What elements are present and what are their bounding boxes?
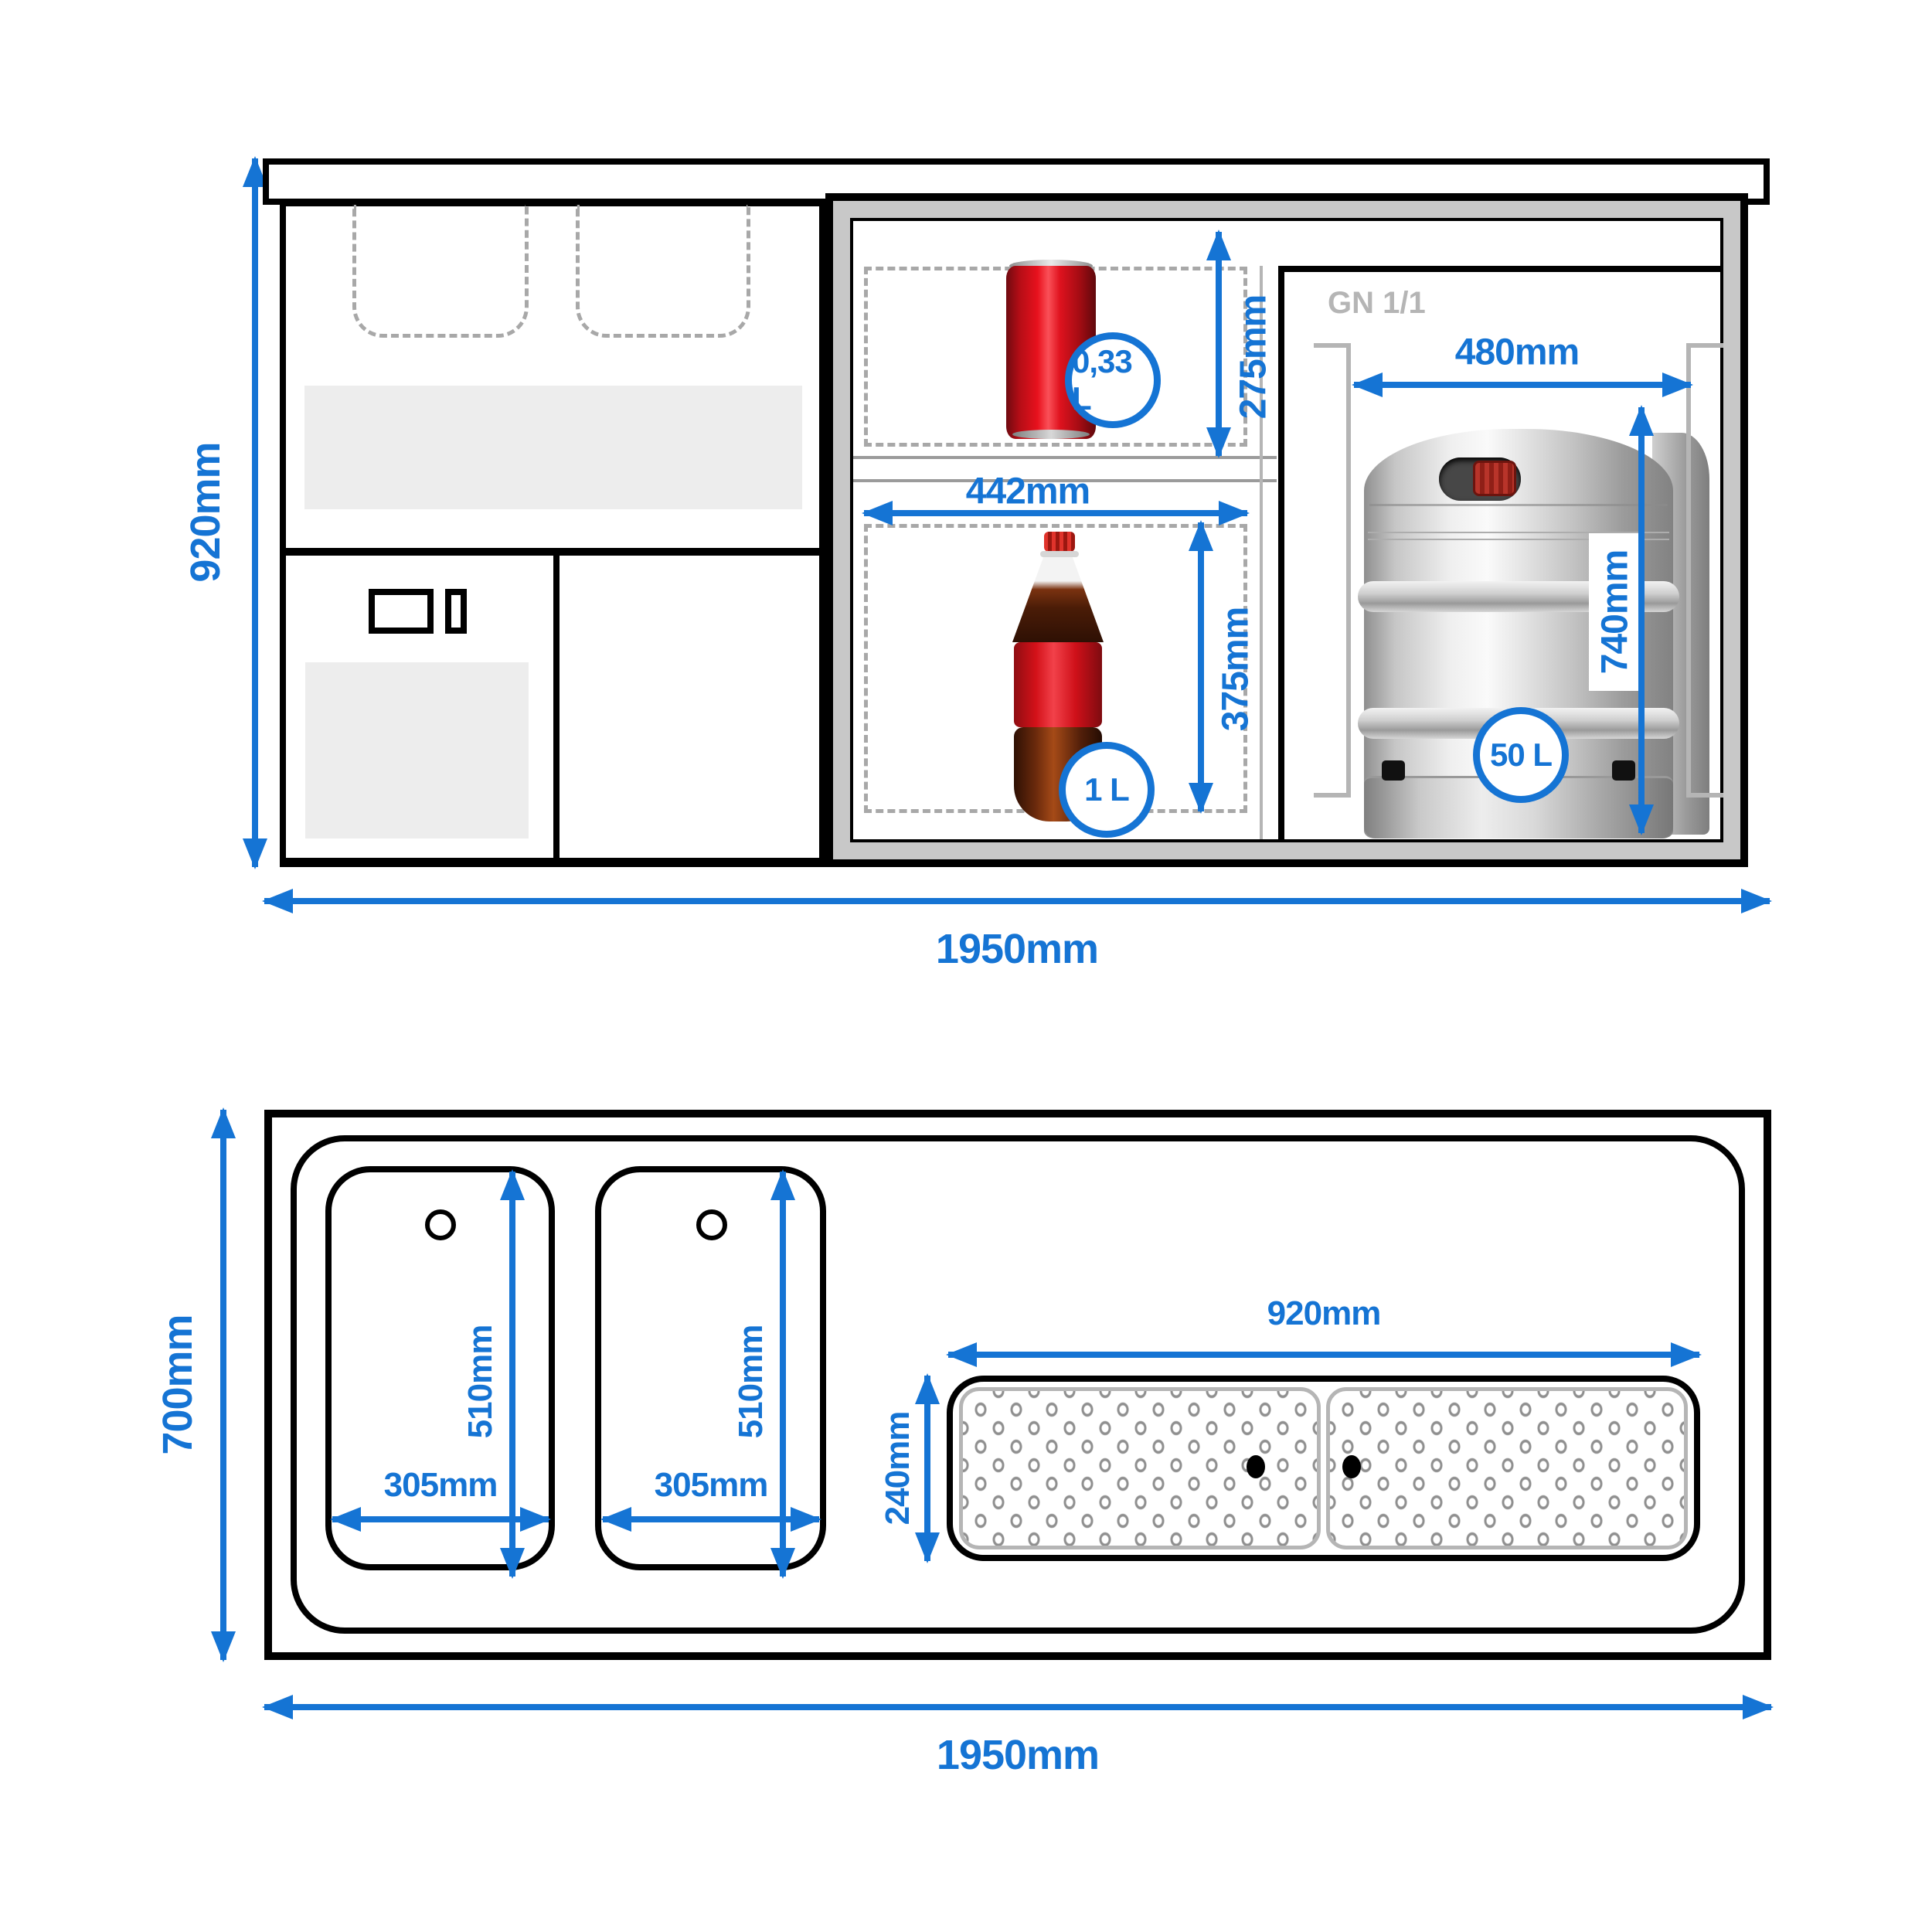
sink-drain-2 <box>696 1209 727 1240</box>
dim-label-sink2-length: 510mm <box>732 1325 770 1439</box>
volume-badge-bottle: 1 L <box>1059 742 1155 838</box>
dim-line-can-height <box>1216 232 1222 456</box>
keg-rail-left <box>1314 343 1351 798</box>
bottle-volume-label: 1 L <box>1084 771 1129 808</box>
cabinet-gray-band <box>304 386 802 509</box>
dim-label-keg-height: 740mm <box>1594 550 1637 674</box>
dim-label-sink1-length: 510mm <box>461 1325 500 1439</box>
dim-label-shelf-width: 442mm <box>966 471 1090 513</box>
dim-label-bottle-height: 375mm <box>1215 607 1257 731</box>
drip-tray-drain-left <box>1247 1455 1265 1478</box>
sink-drain-1 <box>425 1209 456 1240</box>
gn-size-label: GN 1/1 <box>1328 286 1426 321</box>
can-volume-label: 0,33 L <box>1072 343 1154 417</box>
dim-line-shelf-width <box>864 510 1247 516</box>
dim-label-overall-width-plan: 1950mm <box>937 1731 1099 1779</box>
dim-label-drainer-depth: 240mm <box>879 1412 917 1526</box>
bottle-neck-ring <box>1040 551 1079 557</box>
dim-line-overall-depth <box>220 1110 226 1660</box>
sink-bowl-outline-right <box>576 205 750 338</box>
dim-line-sink1-width <box>332 1516 549 1522</box>
dim-line-overall-width-front <box>264 898 1770 904</box>
drip-tray-insert-right <box>1326 1387 1688 1549</box>
dim-label-sink2-width: 305mm <box>655 1466 768 1505</box>
dim-line-overall-height <box>252 158 258 867</box>
keg-rail-right <box>1686 343 1723 798</box>
control-panel-display <box>369 589 434 634</box>
drip-tray-insert-left <box>959 1387 1321 1549</box>
door-panel-gray <box>305 662 529 838</box>
volume-badge-can: 0,33 L <box>1065 332 1161 428</box>
dim-line-overall-width-plan <box>264 1704 1771 1710</box>
dim-label-overall-depth: 700mm <box>154 1315 202 1454</box>
bottle-label-band <box>1014 642 1102 727</box>
keg-dome-line <box>1369 504 1668 506</box>
dim-line-sink2-width <box>603 1516 819 1522</box>
can-bottom-rim <box>1012 430 1090 439</box>
dim-label-keg-width: 480mm <box>1455 332 1579 374</box>
dim-line-drainer-width <box>948 1352 1699 1358</box>
dim-label-sink1-width: 305mm <box>384 1466 498 1505</box>
door-divider <box>553 556 560 858</box>
keg-volume-label: 50 L <box>1490 736 1552 774</box>
drip-tray-drain-right <box>1342 1455 1361 1478</box>
dim-label-drainer-width: 920mm <box>1267 1294 1381 1333</box>
bottle-cap <box>1044 532 1075 552</box>
keg-cap-red <box>1473 461 1516 496</box>
dim-label-can-height: 275mm <box>1233 295 1275 419</box>
keg-chime-notch-right <box>1612 760 1635 781</box>
dim-line-keg-height <box>1638 407 1645 833</box>
dim-line-keg-width <box>1354 382 1691 388</box>
sink-bowl-outline-left <box>352 205 529 338</box>
keg-chime-notch-left <box>1382 760 1405 781</box>
dim-line-drainer-depth <box>924 1376 930 1561</box>
dim-label-overall-width-front: 1950mm <box>936 925 1098 973</box>
cabinet-horizontal-divider <box>280 548 825 556</box>
dim-line-bottle-height <box>1198 522 1204 811</box>
volume-badge-keg: 50 L <box>1473 707 1569 803</box>
beverage-counter-dimension-diagram: 920mm 0,33 L <box>0 0 1932 1932</box>
control-panel-switch <box>445 589 467 634</box>
dim-label-overall-height: 920mm <box>182 442 230 582</box>
